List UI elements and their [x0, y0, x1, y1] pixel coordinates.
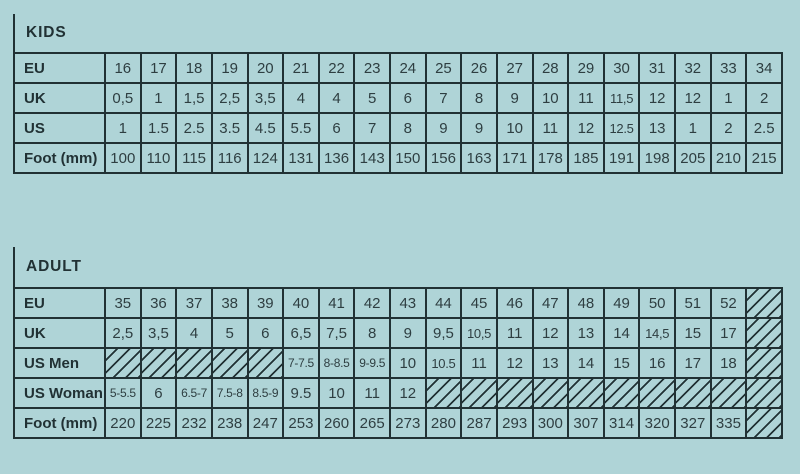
size-value-cell: 7 [426, 83, 462, 113]
size-value-cell: 23 [354, 53, 390, 83]
size-chart-page: KIDS EU161718192021222324252627282930313… [0, 0, 800, 474]
size-value-cell: 131 [283, 143, 319, 173]
row-label: US Woman [14, 378, 105, 408]
size-value-cell: 9,5 [426, 318, 462, 348]
size-value-cell: 7 [354, 113, 390, 143]
size-value-cell: 41 [319, 288, 355, 318]
kids-section: KIDS EU161718192021222324252627282930313… [13, 14, 783, 174]
size-value-cell: 42 [354, 288, 390, 318]
unavailable-hatched-cell [568, 378, 604, 408]
row-label: US [14, 113, 105, 143]
unavailable-hatched-cell [639, 378, 675, 408]
size-value-cell: 1,5 [176, 83, 212, 113]
size-value-cell: 300 [533, 408, 569, 438]
size-value-cell: 13 [639, 113, 675, 143]
size-value-cell: 7.5-8 [212, 378, 248, 408]
row-label: UK [14, 318, 105, 348]
size-value-cell: 7-7.5 [283, 348, 319, 378]
size-value-cell: 21 [283, 53, 319, 83]
size-value-cell: 10 [497, 113, 533, 143]
size-value-cell: 287 [461, 408, 497, 438]
size-value-cell: 178 [533, 143, 569, 173]
table-row: Foot (mm)2202252322382472532602652732802… [14, 408, 782, 438]
size-value-cell: 2,5 [212, 83, 248, 113]
row-label: UK [14, 83, 105, 113]
size-value-cell: 307 [568, 408, 604, 438]
adult-size-table: EU353637383940414243444546474849505152UK… [13, 287, 783, 439]
size-value-cell: 26 [461, 53, 497, 83]
size-value-cell: 225 [141, 408, 177, 438]
size-value-cell: 320 [639, 408, 675, 438]
size-value-cell: 9 [461, 113, 497, 143]
size-value-cell: 12 [390, 378, 426, 408]
size-value-cell: 9.5 [283, 378, 319, 408]
size-value-cell: 11 [354, 378, 390, 408]
unavailable-hatched-cell [105, 348, 141, 378]
size-value-cell: 15 [604, 348, 640, 378]
size-value-cell: 40 [283, 288, 319, 318]
size-value-cell: 38 [212, 288, 248, 318]
row-label: EU [14, 53, 105, 83]
size-value-cell: 14 [568, 348, 604, 378]
size-value-cell: 12 [675, 83, 711, 113]
size-value-cell: 10,5 [461, 318, 497, 348]
unavailable-hatched-cell [461, 378, 497, 408]
unavailable-hatched-cell [746, 378, 782, 408]
size-value-cell: 35 [105, 288, 141, 318]
size-value-cell: 100 [105, 143, 141, 173]
size-value-cell: 293 [497, 408, 533, 438]
size-value-cell: 10 [319, 378, 355, 408]
table-row: EU353637383940414243444546474849505152 [14, 288, 782, 318]
size-value-cell: 18 [711, 348, 747, 378]
unavailable-hatched-cell [533, 378, 569, 408]
size-value-cell: 8-8.5 [319, 348, 355, 378]
size-value-cell: 232 [176, 408, 212, 438]
size-value-cell: 8.5-9 [248, 378, 284, 408]
size-value-cell: 6,5 [283, 318, 319, 348]
size-value-cell: 220 [105, 408, 141, 438]
size-value-cell: 335 [711, 408, 747, 438]
size-value-cell: 52 [711, 288, 747, 318]
size-value-cell: 1 [675, 113, 711, 143]
size-value-cell: 238 [212, 408, 248, 438]
size-value-cell: 7,5 [319, 318, 355, 348]
table-row: UK2,53,54566,57,5899,510,51112131414,515… [14, 318, 782, 348]
size-value-cell: 2 [746, 83, 782, 113]
size-value-cell: 29 [568, 53, 604, 83]
size-value-cell: 47 [533, 288, 569, 318]
size-value-cell: 45 [461, 288, 497, 318]
size-value-cell: 31 [639, 53, 675, 83]
size-value-cell: 2 [711, 113, 747, 143]
table-row: EU16171819202122232425262728293031323334 [14, 53, 782, 83]
size-value-cell: 9 [497, 83, 533, 113]
unavailable-hatched-cell [604, 378, 640, 408]
size-value-cell: 10 [390, 348, 426, 378]
size-value-cell: 2.5 [746, 113, 782, 143]
size-value-cell: 205 [675, 143, 711, 173]
adult-section: ADULT EU35363738394041424344454647484950… [13, 247, 783, 439]
size-value-cell: 12.5 [604, 113, 640, 143]
size-value-cell: 5-5.5 [105, 378, 141, 408]
size-value-cell: 9-9.5 [354, 348, 390, 378]
size-value-cell: 24 [390, 53, 426, 83]
size-value-cell: 6.5-7 [176, 378, 212, 408]
unavailable-hatched-cell [746, 408, 782, 438]
size-value-cell: 12 [497, 348, 533, 378]
size-value-cell: 28 [533, 53, 569, 83]
size-value-cell: 12 [533, 318, 569, 348]
size-value-cell: 1 [141, 83, 177, 113]
size-value-cell: 32 [675, 53, 711, 83]
size-value-cell: 11 [568, 83, 604, 113]
size-value-cell: 12 [568, 113, 604, 143]
size-value-cell: 5 [212, 318, 248, 348]
size-value-cell: 185 [568, 143, 604, 173]
size-value-cell: 8 [390, 113, 426, 143]
size-value-cell: 163 [461, 143, 497, 173]
size-value-cell: 6 [319, 113, 355, 143]
size-value-cell: 13 [533, 348, 569, 378]
size-value-cell: 314 [604, 408, 640, 438]
unavailable-hatched-cell [497, 378, 533, 408]
size-value-cell: 49 [604, 288, 640, 318]
size-value-cell: 150 [390, 143, 426, 173]
row-label: Foot (mm) [14, 408, 105, 438]
kids-section-header: KIDS [13, 14, 783, 52]
size-value-cell: 36 [141, 288, 177, 318]
size-value-cell: 46 [497, 288, 533, 318]
size-value-cell: 48 [568, 288, 604, 318]
size-value-cell: 30 [604, 53, 640, 83]
size-value-cell: 13 [568, 318, 604, 348]
table-row: US Men7-7.58-8.59-9.51010.51112131415161… [14, 348, 782, 378]
size-value-cell: 6 [141, 378, 177, 408]
size-value-cell: 124 [248, 143, 284, 173]
unavailable-hatched-cell [746, 318, 782, 348]
size-value-cell: 198 [639, 143, 675, 173]
unavailable-hatched-cell [426, 378, 462, 408]
size-value-cell: 50 [639, 288, 675, 318]
size-value-cell: 10.5 [426, 348, 462, 378]
size-value-cell: 8 [461, 83, 497, 113]
adult-section-header: ADULT [13, 247, 783, 287]
size-value-cell: 12 [639, 83, 675, 113]
size-value-cell: 17 [675, 348, 711, 378]
size-value-cell: 1 [711, 83, 747, 113]
size-value-cell: 6 [248, 318, 284, 348]
size-value-cell: 9 [426, 113, 462, 143]
kids-size-table: EU16171819202122232425262728293031323334… [13, 52, 783, 174]
size-value-cell: 17 [141, 53, 177, 83]
size-value-cell: 115 [176, 143, 212, 173]
size-value-cell: 27 [497, 53, 533, 83]
row-label: EU [14, 288, 105, 318]
size-value-cell: 5 [354, 83, 390, 113]
size-value-cell: 9 [390, 318, 426, 348]
size-value-cell: 2.5 [176, 113, 212, 143]
size-value-cell: 2,5 [105, 318, 141, 348]
size-value-cell: 17 [711, 318, 747, 348]
unavailable-hatched-cell [212, 348, 248, 378]
size-value-cell: 19 [212, 53, 248, 83]
size-value-cell: 37 [176, 288, 212, 318]
unavailable-hatched-cell [675, 378, 711, 408]
size-value-cell: 11,5 [604, 83, 640, 113]
size-value-cell: 3.5 [212, 113, 248, 143]
size-value-cell: 15 [675, 318, 711, 348]
size-value-cell: 20 [248, 53, 284, 83]
size-value-cell: 39 [248, 288, 284, 318]
size-value-cell: 4.5 [248, 113, 284, 143]
unavailable-hatched-cell [711, 378, 747, 408]
unavailable-hatched-cell [176, 348, 212, 378]
unavailable-hatched-cell [746, 348, 782, 378]
size-value-cell: 156 [426, 143, 462, 173]
size-value-cell: 6 [390, 83, 426, 113]
size-value-cell: 1.5 [141, 113, 177, 143]
size-value-cell: 5.5 [283, 113, 319, 143]
size-value-cell: 136 [319, 143, 355, 173]
row-label: US Men [14, 348, 105, 378]
size-value-cell: 260 [319, 408, 355, 438]
size-value-cell: 4 [283, 83, 319, 113]
size-value-cell: 14,5 [639, 318, 675, 348]
size-value-cell: 3,5 [141, 318, 177, 348]
size-value-cell: 16 [639, 348, 675, 378]
size-value-cell: 215 [746, 143, 782, 173]
size-value-cell: 247 [248, 408, 284, 438]
size-value-cell: 280 [426, 408, 462, 438]
size-value-cell: 116 [212, 143, 248, 173]
size-value-cell: 22 [319, 53, 355, 83]
size-value-cell: 4 [319, 83, 355, 113]
size-value-cell: 44 [426, 288, 462, 318]
size-value-cell: 8 [354, 318, 390, 348]
size-value-cell: 273 [390, 408, 426, 438]
size-value-cell: 10 [533, 83, 569, 113]
size-value-cell: 253 [283, 408, 319, 438]
size-value-cell: 16 [105, 53, 141, 83]
unavailable-hatched-cell [248, 348, 284, 378]
adult-title: ADULT [26, 258, 82, 276]
size-value-cell: 171 [497, 143, 533, 173]
size-value-cell: 14 [604, 318, 640, 348]
size-value-cell: 25 [426, 53, 462, 83]
size-value-cell: 18 [176, 53, 212, 83]
table-row: Foot (mm)1001101151161241311361431501561… [14, 143, 782, 173]
size-value-cell: 11 [533, 113, 569, 143]
size-value-cell: 110 [141, 143, 177, 173]
kids-title: KIDS [26, 24, 67, 42]
size-value-cell: 33 [711, 53, 747, 83]
size-value-cell: 191 [604, 143, 640, 173]
table-row: UK0,511,52,53,54456789101111,5121212 [14, 83, 782, 113]
size-value-cell: 0,5 [105, 83, 141, 113]
size-value-cell: 265 [354, 408, 390, 438]
table-row: US11.52.53.54.55.56789910111212.513122.5 [14, 113, 782, 143]
size-value-cell: 11 [461, 348, 497, 378]
size-value-cell: 327 [675, 408, 711, 438]
unavailable-hatched-cell [746, 288, 782, 318]
size-value-cell: 34 [746, 53, 782, 83]
unavailable-hatched-cell [141, 348, 177, 378]
size-value-cell: 4 [176, 318, 212, 348]
size-value-cell: 143 [354, 143, 390, 173]
row-label: Foot (mm) [14, 143, 105, 173]
size-value-cell: 1 [105, 113, 141, 143]
size-value-cell: 11 [497, 318, 533, 348]
size-value-cell: 51 [675, 288, 711, 318]
size-value-cell: 43 [390, 288, 426, 318]
table-row: US Woman5-5.566.5-77.5-88.5-99.5101112 [14, 378, 782, 408]
size-value-cell: 3,5 [248, 83, 284, 113]
size-value-cell: 210 [711, 143, 747, 173]
